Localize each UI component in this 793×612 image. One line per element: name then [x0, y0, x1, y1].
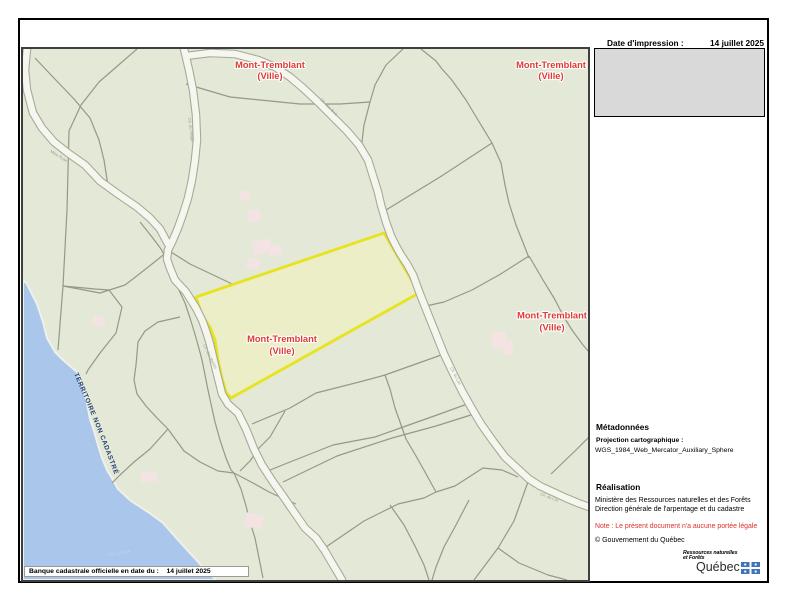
svg-text:Mont-Tremblant: Mont-Tremblant: [247, 334, 317, 344]
svg-text:(Ville): (Ville): [538, 71, 563, 81]
svg-text:(Ville): (Ville): [257, 71, 282, 81]
svg-text:Mont-Tremblant: Mont-Tremblant: [516, 60, 586, 70]
svg-text:(Ville): (Ville): [539, 323, 564, 333]
svg-text:(Ville): (Ville): [269, 346, 294, 356]
svg-text:Mont-Tremblant: Mont-Tremblant: [517, 311, 587, 321]
svg-text:Mont-Tremblant: Mont-Tremblant: [235, 60, 305, 70]
